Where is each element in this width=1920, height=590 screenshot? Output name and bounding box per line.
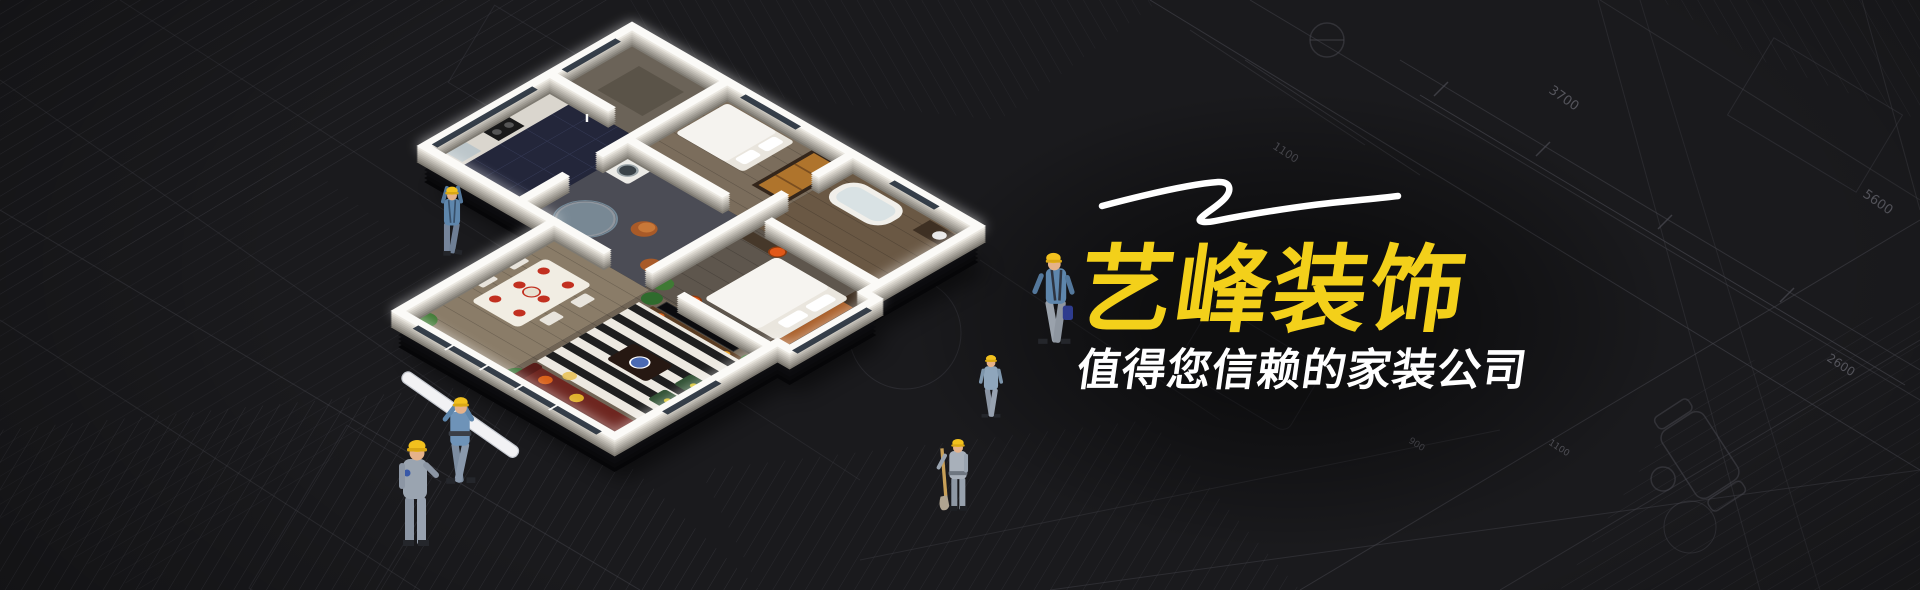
worker-figure-climbing <box>441 185 464 255</box>
worker-figure-standing <box>399 440 440 546</box>
apartment-illustration <box>0 0 1920 590</box>
shovel-blade <box>940 495 950 510</box>
worker-figure-bag <box>1032 253 1076 344</box>
worker-figure-walking <box>979 355 1004 418</box>
tool-bag <box>1063 306 1073 320</box>
hero-banner: 3700 5600 1100 2600 900 1100 <box>0 0 1920 590</box>
worker-figure-shovel <box>936 439 968 511</box>
